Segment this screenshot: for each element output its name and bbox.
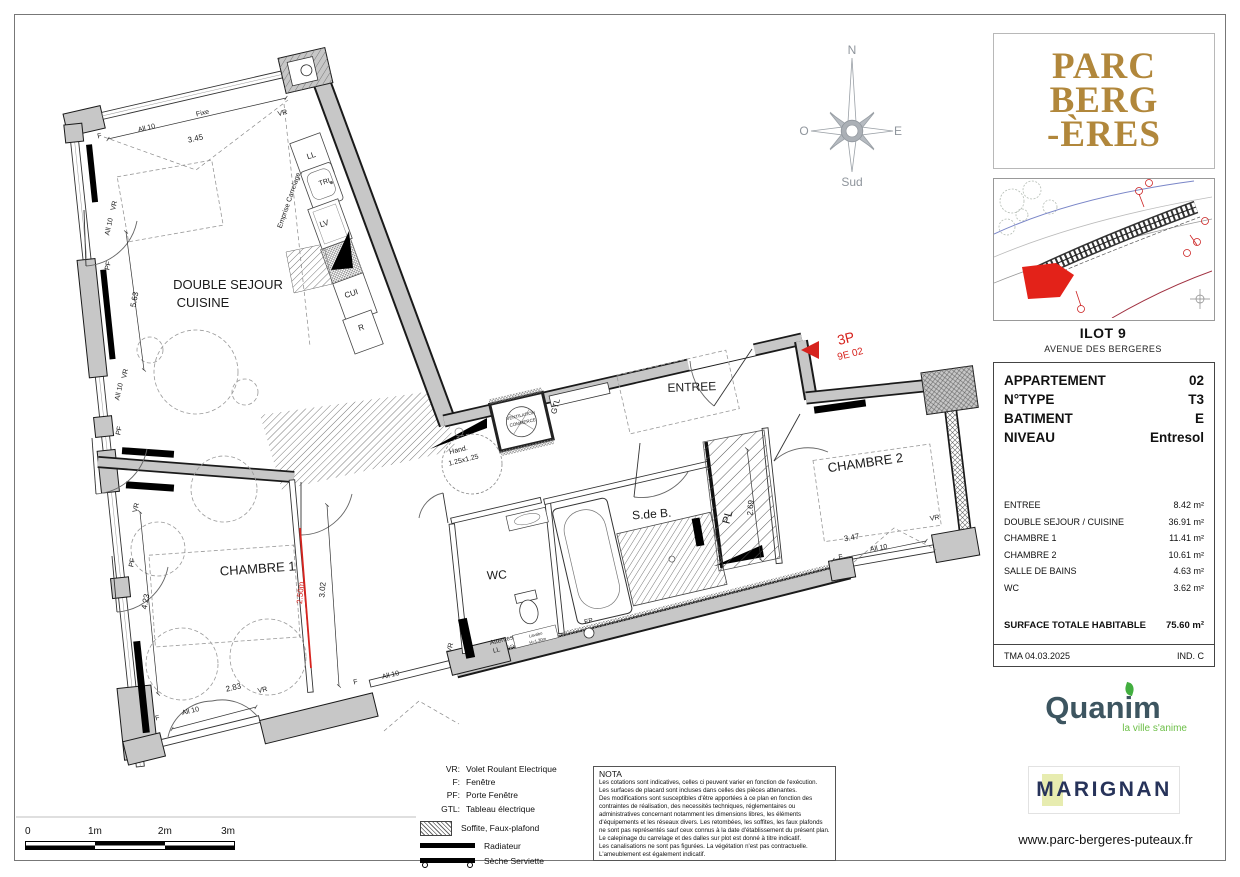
nota-body: Les cotations sont indicatives, celles c…	[599, 779, 830, 859]
compass-rose	[811, 58, 893, 172]
plan-annotation: 5.63	[129, 291, 141, 308]
quanim-logo: Quanim la ville s'anime	[993, 690, 1213, 734]
compass-east-label: E	[894, 124, 902, 138]
scale-label: 1m	[88, 826, 102, 837]
plan-annotation: F	[838, 554, 843, 562]
site-plan-graphic	[994, 179, 1212, 318]
legend-towel-dryer-row: Sèche Serviette	[420, 856, 598, 866]
scale-labels: 0 1m 2m 3m	[25, 826, 235, 839]
compass-west-label: O	[799, 124, 808, 138]
plan-annotation: VR	[121, 368, 130, 379]
scale-segment	[95, 842, 164, 849]
plan-annotation: All 10	[137, 123, 156, 134]
scale-label: 0	[25, 826, 31, 837]
revision-date: TMA 04.03.2025	[1004, 651, 1070, 661]
room-label-sdb: S.de B.	[632, 506, 672, 523]
info-row: APPARTEMENT02	[1004, 371, 1204, 390]
legend-label: Sèche Serviette	[484, 856, 544, 866]
kitchen-units	[290, 133, 383, 354]
area-row: ENTREE8.42 m²	[1004, 497, 1204, 514]
legend-abbr: F:	[420, 776, 460, 789]
legend-label: Soffite, Faux-plafond	[461, 823, 539, 833]
area-label: SALLE DE BAINS	[1004, 563, 1077, 580]
legend-label: Fenêtre	[466, 776, 495, 789]
plan-annotation: All 10	[104, 217, 115, 236]
legend-abbr: VR:	[420, 763, 460, 776]
towel-dryer-swatch-icon	[420, 858, 475, 863]
info-value: T3	[1188, 390, 1204, 409]
info-label: NIVEAU	[1004, 428, 1055, 447]
info-row: N°TYPET3	[1004, 390, 1204, 409]
area-value: 36.91 m²	[1168, 514, 1204, 531]
site-caption: ILOT 9 AVENUE DES BERGERES	[993, 325, 1213, 354]
area-label: CHAMBRE 2	[1004, 547, 1057, 564]
apartment-info-panel: APPARTEMENT02 N°TYPET3 BATIMENTE NIVEAUE…	[993, 362, 1215, 667]
area-value: 11.41 m²	[1169, 530, 1204, 547]
logo-line-1: PARC	[1052, 50, 1156, 84]
site-blue-line	[994, 181, 1194, 234]
plan-annotation: All 10	[114, 382, 125, 401]
info-label: BATIMENT	[1004, 409, 1073, 428]
plan-annotation: F	[97, 133, 103, 141]
plan-annotation: F	[353, 679, 359, 687]
legend-abbr: PF:	[420, 789, 460, 802]
plan-annotation: VR	[257, 686, 268, 695]
area-row: WC3.62 m²	[1004, 580, 1204, 597]
info-row: NIVEAUEntresol	[1004, 428, 1204, 447]
site-trees	[999, 181, 1057, 235]
site-highlighted-unit	[1022, 263, 1074, 299]
legend-row: VR:Volet Roulant Electrique	[420, 763, 598, 776]
legend-label: Volet Roulant Electrique	[466, 763, 557, 776]
scale-label: 2m	[158, 826, 172, 837]
room-label-sejour: DOUBLE SEJOUR	[173, 277, 283, 292]
total-area-row: SURFACE TOTALE HABITABLE 75.60 m²	[1004, 620, 1204, 631]
plan-annotation: PF	[104, 261, 113, 271]
site-red-line	[1112, 271, 1212, 318]
ilot-subtitle: AVENUE DES BERGERES	[993, 344, 1213, 354]
plan-annotation: PF	[115, 426, 124, 436]
info-label: APPARTEMENT	[1004, 371, 1106, 390]
legend-row: PF:Porte Fenêtre	[420, 789, 598, 802]
nota-title: NOTA	[599, 769, 830, 779]
area-row: CHAMBRE 210.61 m²	[1004, 547, 1204, 564]
logo-line-3: -ÈRES	[1047, 118, 1161, 152]
scale-bar-graphic	[25, 841, 235, 850]
area-value: 4.63 m²	[1173, 563, 1204, 580]
scale-segment	[165, 842, 234, 849]
quanim-text: Quanim	[1045, 690, 1160, 725]
plan-annotation: VR	[132, 502, 141, 513]
bathroom-fixtures	[458, 471, 728, 658]
area-label: DOUBLE SEJOUR / CUISINE	[1004, 514, 1124, 531]
room-label-chambre1: CHAMBRE 1	[219, 558, 296, 578]
ilot-title: ILOT 9	[993, 325, 1213, 341]
plan-annotation: 3.02	[317, 581, 327, 598]
legend-row: F:Fenêtre	[420, 776, 598, 789]
area-value: 3.62 m²	[1173, 580, 1204, 597]
logo-line-2: BERG	[1050, 84, 1159, 118]
top-wall	[62, 48, 333, 144]
compass-north-label: N	[848, 43, 857, 57]
scale-segment	[26, 842, 95, 849]
plan-annotation: PF	[128, 558, 137, 568]
area-value: 10.61 m²	[1168, 547, 1204, 564]
compass-south-label: Sud	[841, 175, 862, 189]
legend-label: Radiateur	[484, 841, 521, 851]
project-logo: PARC BERG -ÈRES	[993, 33, 1215, 169]
info-value: 02	[1189, 371, 1204, 390]
area-row: SALLE DE BAINS4.63 m²	[1004, 563, 1204, 580]
website-url: www.parc-bergeres-puteaux.fr	[993, 832, 1218, 847]
scale-label: 3m	[221, 826, 235, 837]
site-plan-thumbnail	[993, 178, 1215, 321]
plan-annotation: All 10	[870, 544, 889, 554]
plan-annotation: 2.69	[745, 499, 755, 516]
floor-plan: DOUBLE SEJOURCUISINEENTREECHAMBRE 1CHAMB…	[0, 0, 985, 877]
plan-annotation: 2.83	[225, 681, 243, 693]
plan-annotation: VR	[277, 109, 288, 118]
room-label-cuisine: CUISINE	[177, 295, 230, 310]
area-label: ENTREE	[1004, 497, 1041, 514]
plan-annotation: All 10	[181, 706, 200, 717]
legend-abbr: GTL:	[420, 803, 460, 816]
legend-soffite-row: Soffite, Faux-plafond	[420, 821, 598, 836]
legend: VR:Volet Roulant Electrique F:Fenêtre PF…	[420, 763, 598, 866]
marignan-wordmark: MARIGNAN	[1036, 778, 1172, 802]
nota-box: NOTA Les cotations sont indicatives, cel…	[593, 766, 836, 861]
bottom-window-ch1	[120, 638, 516, 777]
info-value: E	[1195, 409, 1204, 428]
area-value: 8.42 m²	[1173, 497, 1204, 514]
plan-annotation: Emprise Carrelage	[277, 172, 303, 230]
area-row: DOUBLE SEJOUR / CUISINE36.91 m²	[1004, 514, 1204, 531]
revision-row: TMA 04.03.2025 IND. C	[994, 644, 1214, 666]
room-label-wc: WC	[486, 567, 507, 582]
plan-annotation: VR	[929, 514, 940, 523]
unit-type-label: 3P	[836, 328, 856, 348]
plan-annotation: Fixe	[195, 109, 210, 119]
total-value: 75.60 m²	[1166, 620, 1204, 631]
area-label: WC	[1004, 580, 1019, 597]
plan-annotation: F	[155, 715, 161, 723]
room-label-entree: ENTREE	[667, 379, 716, 395]
room-areas-list: ENTREE8.42 m² DOUBLE SEJOUR / CUISINE36.…	[1004, 497, 1204, 596]
info-value: Entresol	[1150, 428, 1204, 447]
hatch-swatch-icon	[420, 821, 452, 836]
plan-annotation: 3.47	[843, 532, 860, 544]
site-mini-compass	[1190, 289, 1210, 309]
info-label: N°TYPE	[1004, 390, 1054, 409]
area-label: CHAMBRE 1	[1004, 530, 1057, 547]
legend-label: Porte Fenêtre	[466, 789, 518, 802]
marignan-logo: MARIGNAN	[1028, 766, 1180, 814]
legend-label: Tableau électrique	[466, 803, 535, 816]
legend-radiator-row: Radiateur	[420, 841, 598, 851]
unit-code-label: 9E 02	[836, 346, 864, 363]
legend-row: GTL:Tableau électrique	[420, 803, 598, 816]
total-label: SURFACE TOTALE HABITABLE	[1004, 620, 1146, 631]
scale-bar: 0 1m 2m 3m	[25, 826, 235, 850]
radiator-swatch-icon	[420, 843, 475, 848]
plan-annotation: 3.45	[187, 132, 205, 144]
room-label-chambre2: CHAMBRE 2	[827, 450, 904, 475]
quanim-wordmark: Quanim	[1045, 690, 1160, 726]
revision-index: IND. C	[1177, 651, 1204, 661]
info-row: BATIMENTE	[1004, 409, 1204, 428]
plan-annotation: VR	[110, 200, 119, 211]
area-row: CHAMBRE 111.41 m²	[1004, 530, 1204, 547]
